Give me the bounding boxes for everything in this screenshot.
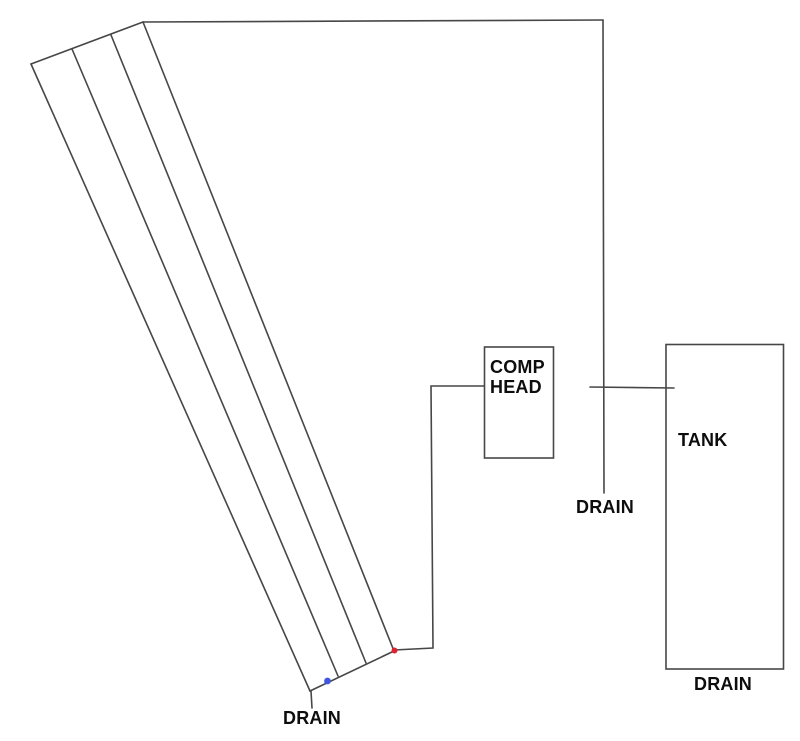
comp-head-label-line2: HEAD bbox=[490, 377, 542, 397]
comp-head-label: COMP HEAD bbox=[490, 357, 545, 397]
comp-head-label-line1: COMP bbox=[490, 357, 545, 377]
tank-box bbox=[666, 345, 784, 670]
tank-drain-label: DRAIN bbox=[663, 674, 783, 694]
pipe-lines bbox=[31, 20, 674, 708]
diagram-canvas bbox=[0, 0, 800, 741]
pipe-run-1 bbox=[31, 64, 310, 691]
pipe-run-2 bbox=[72, 49, 338, 676]
pipe-drain-label: DRAIN bbox=[252, 708, 372, 728]
header-slope-line bbox=[31, 22, 143, 64]
tank-feed-line bbox=[590, 387, 674, 388]
tank-label: TANK bbox=[678, 430, 727, 450]
collector-line bbox=[310, 651, 394, 691]
line-drain-label: DRAIN bbox=[545, 497, 665, 517]
piping-diagram: COMP HEAD TANK DRAIN DRAIN DRAIN bbox=[0, 0, 800, 741]
pipe-run-4 bbox=[143, 22, 394, 651]
top-main-line bbox=[143, 20, 603, 22]
blue-drain-point-icon bbox=[324, 678, 331, 685]
red-drain-point-icon bbox=[392, 648, 398, 654]
comp-head-feed-line bbox=[394, 386, 484, 650]
main-vertical-line bbox=[603, 20, 604, 493]
pipe-run-3 bbox=[111, 35, 366, 663]
pipe-drain-stub bbox=[311, 691, 312, 708]
